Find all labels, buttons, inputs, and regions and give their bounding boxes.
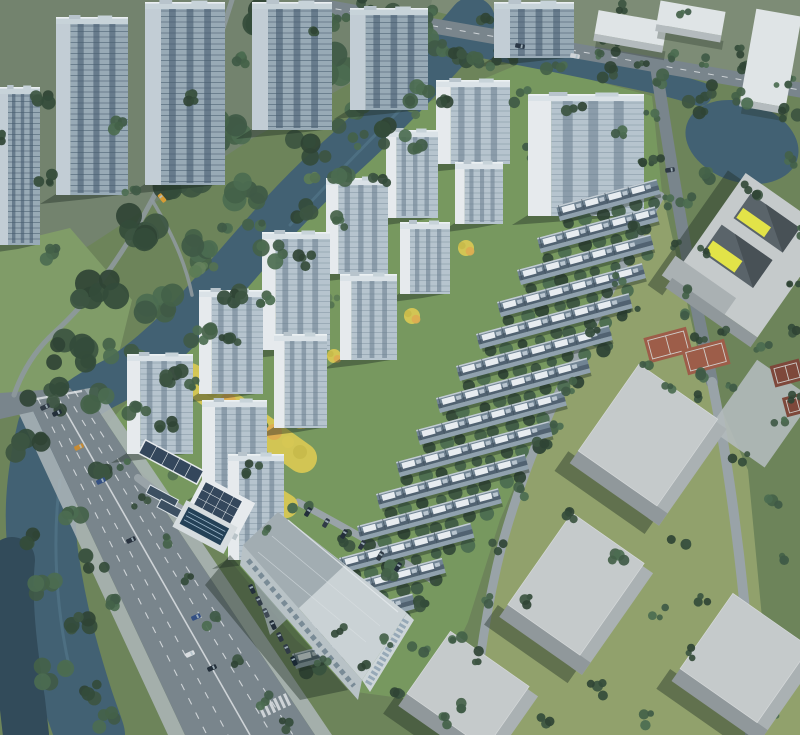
aerial-site-rendering-svg: Aerial rendering of a riverside resident… [0, 0, 800, 735]
aerial-rendering: Aerial rendering of a riverside resident… [0, 0, 800, 735]
atmosphere-haze [0, 0, 800, 735]
